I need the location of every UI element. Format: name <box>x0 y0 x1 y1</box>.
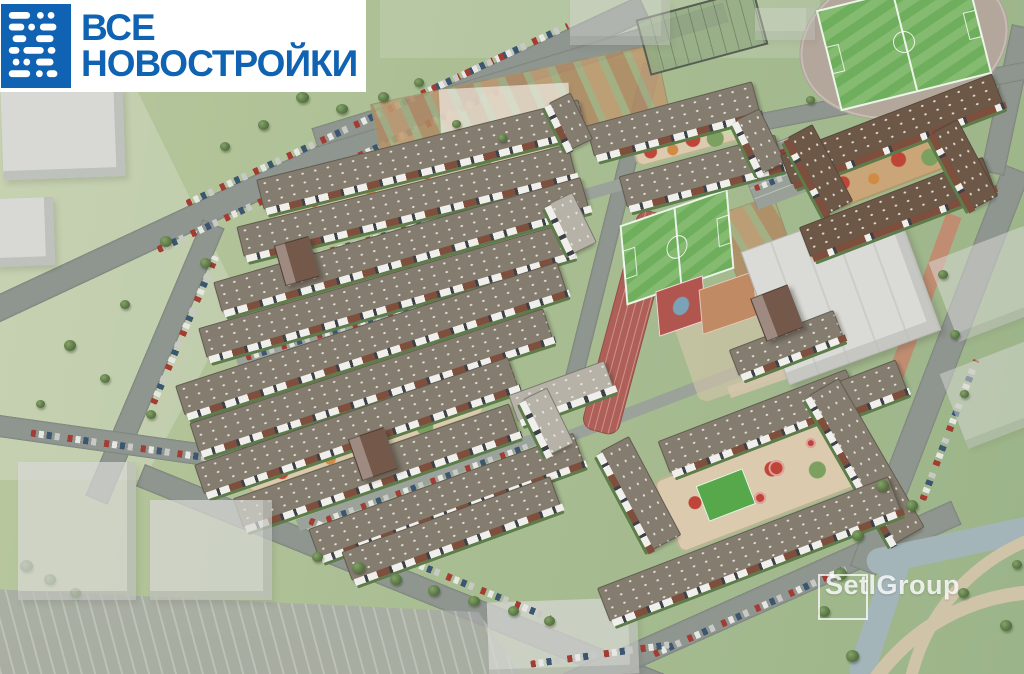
tree <box>160 236 172 247</box>
tree <box>200 258 211 268</box>
tree <box>36 400 45 408</box>
tree <box>1000 620 1012 631</box>
vse-novostroyki-logo: ВСЕ НОВОСТРОЙКИ <box>0 0 366 92</box>
tree <box>498 134 507 142</box>
tree <box>1012 560 1022 569</box>
tree <box>428 585 440 596</box>
tree <box>852 530 864 541</box>
tree <box>258 120 269 130</box>
tree <box>378 92 389 102</box>
ghost-building <box>0 197 55 267</box>
tree <box>544 616 555 626</box>
watermark-frame <box>818 574 868 620</box>
goal-box <box>623 247 638 280</box>
ghost-building <box>755 8 815 40</box>
mini-football-pitch <box>696 468 756 521</box>
tree <box>120 300 130 309</box>
tree <box>352 562 365 573</box>
tree <box>296 92 309 103</box>
play-circle <box>766 458 787 479</box>
goal-box <box>716 214 731 247</box>
ghost-building <box>0 86 125 180</box>
tree <box>100 374 110 383</box>
setl-group-watermark: SetlGroup <box>816 570 960 601</box>
tree <box>960 390 969 398</box>
tree <box>390 574 402 585</box>
tree <box>468 596 480 606</box>
tree <box>938 270 948 279</box>
tree <box>414 78 424 87</box>
tree <box>312 552 323 562</box>
logo-text: ВСЕ НОВОСТРОЙКИ <box>81 10 357 82</box>
tree <box>452 120 461 128</box>
tree <box>950 330 960 339</box>
tree <box>906 500 918 511</box>
tree <box>336 104 348 114</box>
tree <box>806 96 815 104</box>
logo-line1: ВСЕ <box>81 10 357 46</box>
aerial-render-scene: ВСЕ НОВОСТРОЙКИ SetlGroup <box>0 0 1024 674</box>
tree <box>876 480 889 491</box>
tree <box>846 650 859 662</box>
tree <box>220 142 230 151</box>
logo-line2: НОВОСТРОЙКИ <box>81 46 357 82</box>
tree <box>508 606 519 616</box>
tree <box>64 340 76 351</box>
tree <box>146 410 156 419</box>
ghost-building-translucent <box>18 462 136 600</box>
dot-matrix-n-icon <box>1 4 71 88</box>
play-circle <box>804 437 817 450</box>
ghost-building-translucent <box>150 500 272 600</box>
ghost-building <box>570 0 670 45</box>
